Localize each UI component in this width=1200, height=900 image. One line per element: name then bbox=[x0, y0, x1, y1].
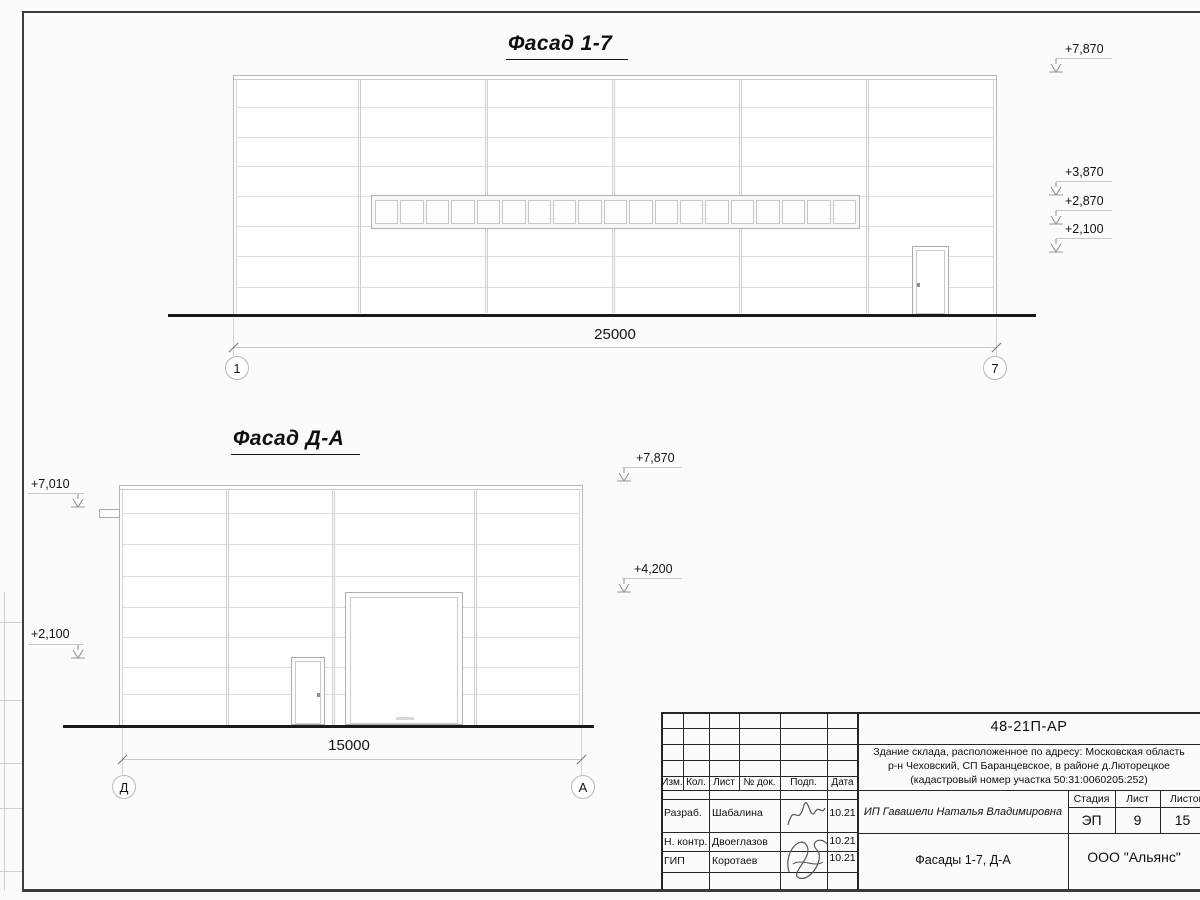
title-block-line bbox=[858, 790, 1200, 791]
dimension-line bbox=[122, 759, 582, 760]
ground-line bbox=[63, 725, 594, 728]
column-line bbox=[579, 489, 580, 725]
title-block-line bbox=[1068, 790, 1069, 890]
frame-top-line bbox=[22, 11, 1200, 13]
company-name: ООО "Альянс" bbox=[1068, 849, 1200, 865]
panel-joint-line bbox=[122, 544, 580, 545]
elevation-arrow-icon bbox=[616, 468, 632, 485]
sheet-label: Лист bbox=[1115, 793, 1160, 805]
panel-joint-line bbox=[122, 576, 580, 577]
elevation-arrow-icon bbox=[70, 494, 86, 511]
col-header-izm: Изм. bbox=[661, 777, 683, 788]
gate-panel bbox=[350, 597, 458, 724]
title-block-line bbox=[858, 833, 1200, 834]
address-line-2: р-н Чеховский, СП Баранцевское, в районе… bbox=[860, 760, 1198, 772]
entrance-door bbox=[912, 246, 949, 315]
window-pane bbox=[782, 200, 805, 224]
window-pane bbox=[502, 200, 525, 224]
window-pane bbox=[705, 200, 728, 224]
column-line bbox=[122, 489, 123, 725]
title-block-border bbox=[661, 712, 663, 890]
stage-label: Стадия bbox=[1068, 793, 1115, 805]
title-block-line bbox=[661, 744, 858, 745]
window-pane bbox=[680, 200, 703, 224]
column-line bbox=[332, 489, 335, 725]
fold-mark-line bbox=[0, 700, 22, 701]
row-role: Разраб. bbox=[664, 807, 702, 819]
window-pane bbox=[451, 200, 474, 224]
title-block-line bbox=[1068, 807, 1200, 808]
fold-mark-line bbox=[0, 808, 22, 809]
door-handle bbox=[917, 283, 920, 287]
parapet-line bbox=[120, 489, 582, 490]
elevation-shelf bbox=[1056, 58, 1112, 59]
panel-joint-line bbox=[236, 256, 994, 257]
elevation-arrow-icon bbox=[1048, 182, 1064, 199]
col-header-data: Дата bbox=[827, 777, 858, 788]
column-line bbox=[993, 79, 994, 313]
row-name: Шабалина bbox=[712, 807, 763, 819]
window-pane bbox=[731, 200, 754, 224]
elevation-arrow-icon bbox=[1048, 59, 1064, 76]
col-header-kol: Кол. bbox=[683, 777, 709, 788]
window-pane bbox=[655, 200, 678, 224]
ground-line bbox=[168, 314, 1036, 317]
facade-d-a-title: Фасад Д-А bbox=[231, 427, 360, 455]
gate-handle bbox=[396, 717, 414, 720]
column-line bbox=[358, 79, 361, 313]
elevation-arrow-icon bbox=[1048, 239, 1064, 256]
parapet-line bbox=[234, 79, 996, 80]
frame-bottom-line bbox=[22, 889, 1200, 892]
elevation-shelf bbox=[1056, 238, 1112, 239]
fold-mark-line bbox=[0, 763, 22, 764]
signature-icon bbox=[781, 828, 829, 882]
title-block-line bbox=[661, 728, 858, 729]
title-block-line bbox=[661, 790, 858, 791]
sheets-label: Листов bbox=[1170, 793, 1200, 805]
elevation-arrow-icon bbox=[1048, 211, 1064, 228]
address-line-3: (кадастровый номер участка 50:31:0060205… bbox=[860, 774, 1198, 786]
panel-joint-line bbox=[236, 107, 994, 108]
sheets-total: 15 bbox=[1160, 812, 1200, 828]
row-date: 10.21 bbox=[827, 852, 858, 864]
row-date: 10.21 bbox=[827, 835, 858, 847]
window-pane bbox=[400, 200, 423, 224]
elevation-label: +2,870 bbox=[1065, 194, 1104, 208]
extension-line bbox=[233, 318, 234, 356]
title-block-line bbox=[858, 744, 1200, 745]
title-block-border bbox=[661, 712, 1200, 714]
sheet-number: 9 bbox=[1115, 812, 1160, 828]
stage-value: ЭП bbox=[1068, 812, 1115, 828]
fold-mark-line bbox=[4, 592, 5, 890]
column-line bbox=[236, 79, 237, 313]
window-pane bbox=[528, 200, 551, 224]
grid-bubble-d: Д bbox=[112, 775, 136, 799]
elevation-label: +3,870 bbox=[1065, 165, 1104, 179]
client-name: ИП Гавашели Наталья Владимировна bbox=[858, 806, 1068, 818]
col-header-podp: Подп. bbox=[780, 777, 827, 788]
grid-label: 1 bbox=[233, 361, 240, 376]
extension-line bbox=[996, 318, 997, 356]
elevation-arrow-icon bbox=[70, 645, 86, 662]
facade-1-7-title: Фасад 1-7 bbox=[506, 32, 628, 60]
row-role: ГИП bbox=[664, 855, 685, 867]
panel-joint-line bbox=[236, 287, 994, 288]
door-leaf bbox=[916, 250, 945, 314]
elevation-shelf bbox=[1056, 210, 1112, 211]
grid-bubble-7: 7 bbox=[983, 356, 1007, 380]
title-block-line bbox=[661, 799, 858, 800]
column-line bbox=[474, 489, 477, 725]
window-pane bbox=[553, 200, 576, 224]
elevation-shelf bbox=[1056, 181, 1112, 182]
row-role: Н. контр. bbox=[664, 836, 707, 848]
address-line-1: Здание склада, расположенное по адресу: … bbox=[860, 746, 1198, 758]
door-handle bbox=[317, 693, 320, 697]
frame-left-line bbox=[22, 11, 24, 892]
column-line bbox=[866, 79, 869, 313]
elevation-label: +4,200 bbox=[634, 562, 673, 576]
doc-number: 48-21П-АР bbox=[858, 719, 1200, 735]
fold-mark-line bbox=[0, 871, 22, 872]
col-header-list: Лист bbox=[709, 777, 739, 788]
grid-label: Д bbox=[120, 780, 129, 795]
column-line bbox=[226, 489, 229, 725]
grid-label: А bbox=[579, 780, 588, 795]
grid-bubble-1: 1 bbox=[225, 356, 249, 380]
row-date: 10.21 bbox=[827, 807, 858, 819]
panel-joint-line bbox=[236, 137, 994, 138]
window-pane bbox=[629, 200, 652, 224]
panel-joint-line bbox=[122, 513, 580, 514]
window-pane bbox=[477, 200, 500, 224]
elevation-label: +7,870 bbox=[1065, 42, 1104, 56]
row-name: Двоеглазов bbox=[712, 836, 768, 848]
grid-label: 7 bbox=[991, 361, 998, 376]
panel-joint-line bbox=[236, 166, 994, 167]
elevation-label: +7,870 bbox=[636, 451, 675, 465]
title-block-line bbox=[661, 760, 858, 761]
entrance-door bbox=[291, 657, 325, 725]
window-pane bbox=[426, 200, 449, 224]
dimension-line bbox=[233, 347, 997, 348]
window-pane bbox=[756, 200, 779, 224]
gate bbox=[345, 592, 463, 725]
elevation-label: +7,010 bbox=[31, 477, 70, 491]
drawing-sheet: { "sheet": { "facade_1_7": { "title": "Ф… bbox=[0, 0, 1200, 900]
row-name: Коротаев bbox=[712, 855, 757, 867]
dimension-value: 25000 bbox=[555, 326, 675, 343]
dimension-value: 15000 bbox=[289, 737, 409, 754]
window-pane bbox=[375, 200, 398, 224]
extension-line bbox=[581, 728, 582, 775]
extension-line bbox=[122, 728, 123, 775]
ribbon-window-band bbox=[371, 195, 860, 229]
elevation-label: +2,100 bbox=[31, 627, 70, 641]
col-header-doc: № док. bbox=[739, 777, 780, 788]
fold-mark-line bbox=[0, 622, 22, 623]
canopy-ledge bbox=[99, 509, 120, 518]
drawing-title: Фасады 1-7, Д-А bbox=[858, 853, 1068, 867]
elevation-label: +2,100 bbox=[1065, 222, 1104, 236]
window-pane bbox=[807, 200, 830, 224]
window-pane bbox=[578, 200, 601, 224]
title-block-line bbox=[709, 712, 710, 890]
window-pane bbox=[604, 200, 627, 224]
window-pane bbox=[833, 200, 856, 224]
grid-bubble-a: А bbox=[571, 775, 595, 799]
elevation-arrow-icon bbox=[616, 579, 632, 596]
